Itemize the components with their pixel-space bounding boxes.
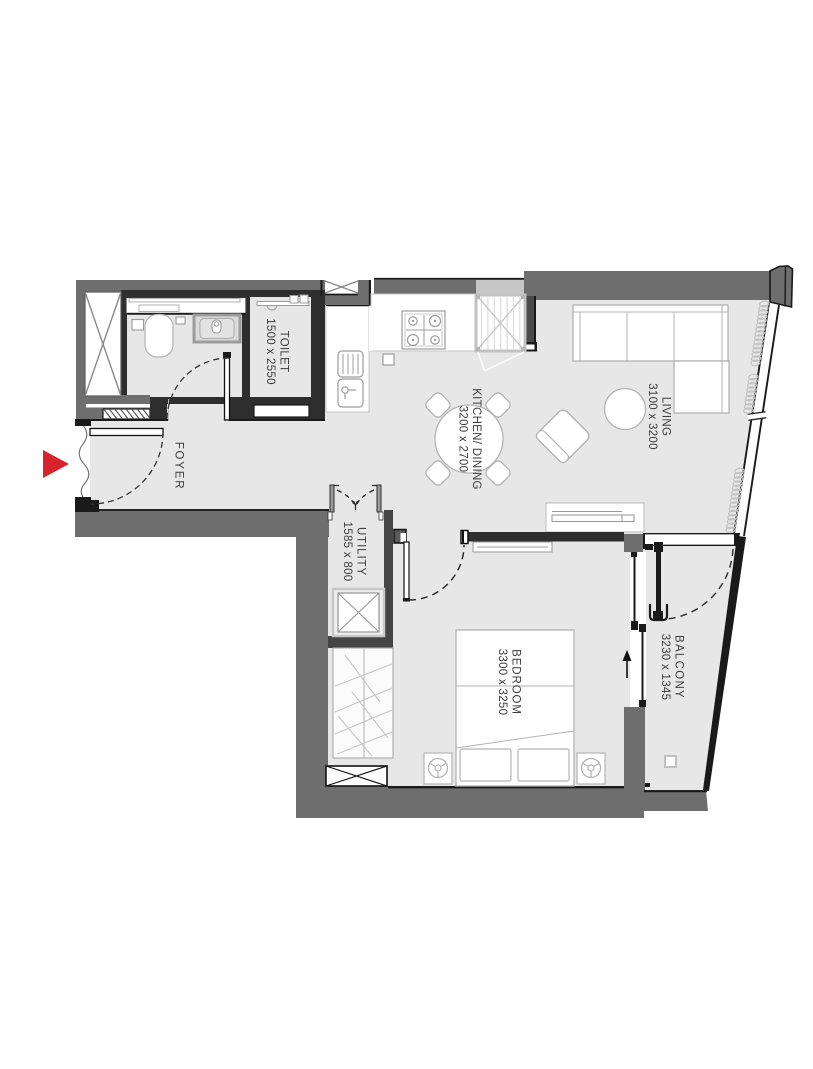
svg-text:UTILITY: UTILITY <box>355 527 367 576</box>
svg-text:BEDROOM: BEDROOM <box>510 649 522 715</box>
svg-text:BALCONY: BALCONY <box>673 635 685 699</box>
svg-text:FOYER: FOYER <box>173 442 185 491</box>
svg-text:3300 x 3250: 3300 x 3250 <box>496 649 508 716</box>
svg-text:3100 x 3200: 3100 x 3200 <box>646 383 658 450</box>
svg-text:1585 x 800: 1585 x 800 <box>341 522 353 582</box>
svg-text:3230 x 1345: 3230 x 1345 <box>659 634 671 701</box>
svg-text:KITCHEN/ DINING: KITCHEN/ DINING <box>470 388 482 490</box>
svg-text:3200 x 2700: 3200 x 2700 <box>457 406 469 473</box>
svg-text:1500 x 2550: 1500 x 2550 <box>264 318 276 385</box>
svg-text:TOILET: TOILET <box>278 331 290 373</box>
svg-text:LIVING: LIVING <box>660 397 672 437</box>
